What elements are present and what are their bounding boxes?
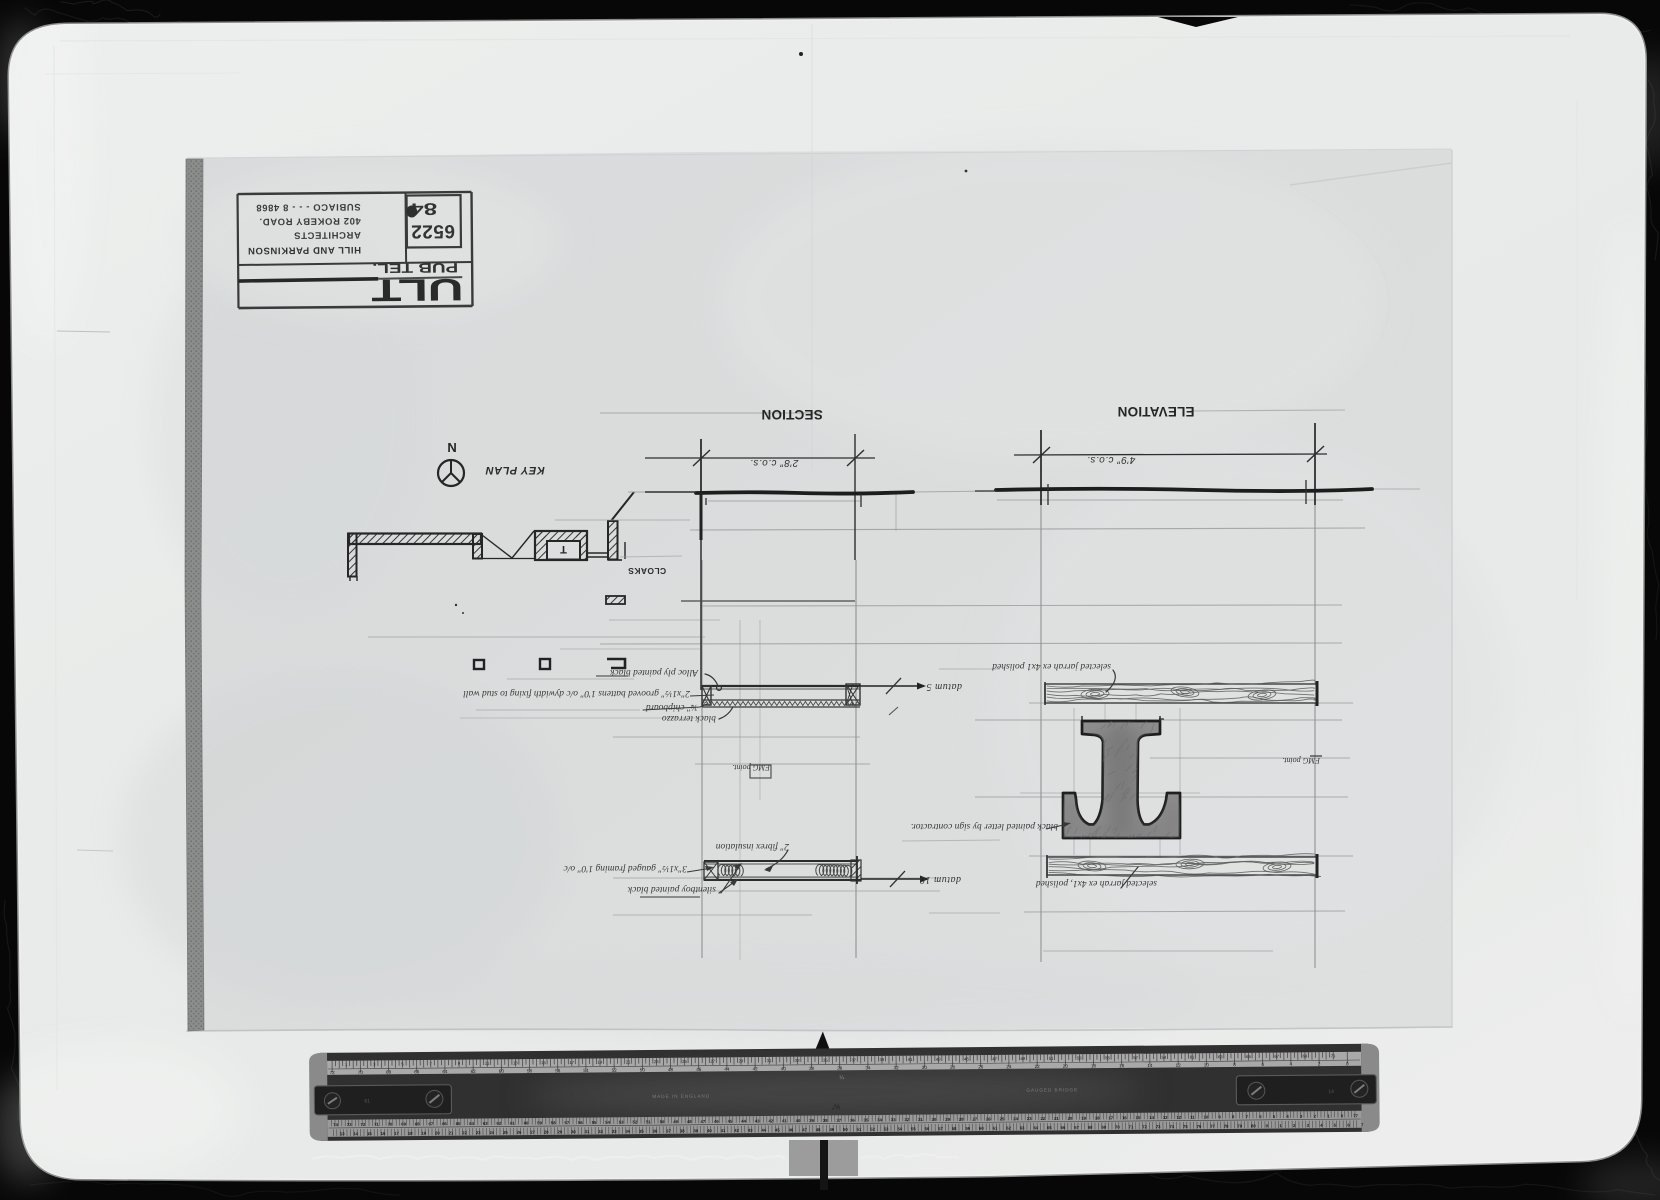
svg-text:73: 73: [347, 1122, 352, 1127]
svg-text:13: 13: [1163, 1115, 1168, 1120]
svg-text:56: 56: [925, 1126, 930, 1131]
svg-text:33: 33: [795, 1058, 800, 1063]
svg-text:59: 59: [965, 1126, 970, 1131]
svg-text:13: 13: [340, 1131, 345, 1136]
svg-text:28: 28: [544, 1129, 549, 1134]
svg-text:41: 41: [721, 1128, 726, 1133]
svg-text:55: 55: [911, 1126, 916, 1131]
svg-text:12: 12: [1176, 1115, 1181, 1120]
svg-text:51: 51: [1049, 1056, 1054, 1061]
svg-text:60: 60: [979, 1126, 984, 1131]
svg-text:61: 61: [1190, 1054, 1195, 1059]
svg-text:34: 34: [865, 1065, 871, 1070]
svg-text:29: 29: [739, 1058, 744, 1063]
svg-text:74: 74: [333, 1122, 338, 1127]
svg-text:10: 10: [1204, 1115, 1209, 1120]
svg-text:50: 50: [843, 1127, 848, 1132]
svg-text:54: 54: [605, 1120, 610, 1125]
svg-text:68: 68: [386, 1070, 392, 1075]
svg-text:ARCHITECTS: ARCHITECTS: [294, 229, 361, 241]
svg-text:64: 64: [1033, 1125, 1038, 1130]
svg-text:56: 56: [578, 1120, 583, 1125]
svg-text:14: 14: [1149, 1115, 1154, 1120]
svg-text:17: 17: [394, 1131, 399, 1136]
svg-text:35: 35: [864, 1117, 869, 1122]
svg-text:GAUGED BRIDGE: GAUGED BRIDGE: [1026, 1087, 1078, 1092]
svg-text:62: 62: [471, 1069, 477, 1074]
svg-text:39: 39: [809, 1118, 814, 1123]
svg-text:black painted letter by sign c: black painted letter by sign contractor.: [911, 821, 1058, 831]
svg-text:39: 39: [880, 1057, 885, 1062]
svg-text:72: 72: [1142, 1124, 1147, 1129]
svg-text:50: 50: [640, 1067, 646, 1072]
svg-text:25: 25: [682, 1059, 687, 1064]
svg-text:41: 41: [782, 1118, 787, 1123]
svg-text:76: 76: [1197, 1124, 1202, 1129]
svg-text:37: 37: [851, 1057, 856, 1062]
svg-text:41: 41: [908, 1057, 913, 1062]
svg-text:15: 15: [367, 1131, 372, 1136]
svg-text:15: 15: [541, 1060, 546, 1065]
svg-text:65: 65: [1246, 1054, 1251, 1059]
svg-text:61: 61: [510, 1121, 515, 1126]
svg-text:2″x1½″ grooved battens 1′0″ o/: 2″x1½″ grooved battens 1′0″ o/c dywidth …: [463, 688, 690, 699]
svg-text:60: 60: [524, 1120, 529, 1125]
svg-text:53: 53: [1077, 1055, 1082, 1060]
svg-text:SUBIACO - - - 8 4868: SUBIACO - - - 8 4868: [256, 201, 361, 213]
svg-text:31: 31: [918, 1117, 923, 1122]
svg-text:66: 66: [414, 1069, 420, 1074]
svg-text:58: 58: [952, 1126, 957, 1131]
svg-text:3″x1½″ gauged framing 1′0″ o/c: 3″x1½″ gauged framing 1′0″ o/c: [563, 863, 688, 874]
svg-text:ULT: ULT: [371, 272, 463, 308]
svg-text:58: 58: [527, 1068, 533, 1073]
svg-text:14: 14: [1328, 1089, 1334, 1095]
svg-text:64: 64: [442, 1069, 448, 1074]
svg-text:61: 61: [993, 1126, 998, 1131]
svg-text:22: 22: [462, 1130, 467, 1135]
svg-text:49: 49: [1021, 1056, 1026, 1061]
svg-text:22: 22: [1035, 1064, 1041, 1069]
svg-text:44: 44: [761, 1128, 766, 1133]
svg-text:18: 18: [408, 1131, 413, 1136]
svg-text:52: 52: [870, 1127, 875, 1132]
svg-text:20: 20: [1063, 1064, 1069, 1069]
svg-text:27: 27: [710, 1059, 715, 1064]
svg-text:silentboy painted black: silentboy painted black: [627, 884, 716, 894]
svg-text:42: 42: [753, 1066, 759, 1071]
svg-text:70: 70: [388, 1122, 393, 1127]
svg-text:58: 58: [551, 1120, 556, 1125]
svg-text:21: 21: [1054, 1116, 1059, 1121]
svg-text:datum 5: datum 5: [926, 681, 962, 692]
svg-text:66: 66: [1061, 1125, 1066, 1130]
svg-text:51: 51: [646, 1119, 651, 1124]
svg-text:12: 12: [1176, 1063, 1182, 1068]
svg-text:HILL AND PARKINSON: HILL AND PARKINSON: [247, 244, 361, 256]
svg-text:32: 32: [598, 1129, 603, 1134]
svg-text:18: 18: [1091, 1064, 1097, 1069]
svg-text:26: 26: [978, 1064, 984, 1069]
svg-text:45: 45: [775, 1127, 780, 1132]
svg-text:77: 77: [1353, 1113, 1358, 1118]
svg-text:65: 65: [1047, 1125, 1052, 1130]
svg-text:N: N: [447, 440, 456, 455]
svg-text:17: 17: [569, 1060, 574, 1065]
svg-text:35: 35: [639, 1129, 644, 1134]
svg-text:32: 32: [904, 1117, 909, 1122]
svg-text:18: 18: [1095, 1115, 1100, 1120]
svg-text:23: 23: [476, 1130, 481, 1135]
svg-text:24: 24: [1013, 1116, 1018, 1121]
svg-text:70: 70: [358, 1070, 364, 1075]
svg-text:MADE IN ENGLAND: MADE IN ENGLAND: [652, 1093, 710, 1099]
svg-text:72: 72: [330, 1070, 336, 1075]
svg-text:black terrazzo: black terrazzo: [662, 713, 716, 723]
svg-text:71: 71: [1129, 1124, 1134, 1129]
svg-text:KEY PLAN: KEY PLAN: [485, 464, 545, 476]
svg-text:71: 71: [1331, 1053, 1336, 1058]
svg-text:28: 28: [959, 1117, 964, 1122]
svg-text:79: 79: [1237, 1123, 1242, 1128]
svg-text:77: 77: [1210, 1124, 1215, 1129]
svg-text:67: 67: [428, 1121, 433, 1126]
svg-text:37: 37: [666, 1128, 671, 1133]
svg-text:37: 37: [836, 1118, 841, 1123]
svg-text:17: 17: [1108, 1115, 1113, 1120]
svg-text:62: 62: [1006, 1125, 1011, 1130]
svg-text:⅝″: ⅝″: [831, 1102, 840, 1111]
svg-text:78: 78: [1224, 1124, 1229, 1129]
svg-text:21: 21: [449, 1130, 454, 1135]
svg-text:56: 56: [555, 1068, 561, 1073]
svg-text:75: 75: [1183, 1124, 1188, 1129]
svg-text:24: 24: [1006, 1064, 1012, 1069]
svg-text:11: 11: [1190, 1115, 1195, 1120]
svg-text:30: 30: [922, 1065, 928, 1070]
svg-text:2″ fibrex insulation: 2″ fibrex insulation: [715, 841, 789, 852]
svg-text:45: 45: [728, 1119, 733, 1124]
svg-text:60: 60: [499, 1069, 505, 1074]
svg-text:47: 47: [802, 1127, 807, 1132]
svg-text:28: 28: [950, 1065, 956, 1070]
svg-text:42: 42: [734, 1128, 739, 1133]
svg-text:43: 43: [755, 1118, 760, 1123]
svg-text:SECTION: SECTION: [761, 407, 822, 422]
svg-text:27: 27: [530, 1130, 535, 1135]
svg-text:50: 50: [660, 1119, 665, 1124]
svg-text:43: 43: [936, 1057, 941, 1062]
svg-text:36: 36: [850, 1118, 855, 1123]
svg-text:20: 20: [435, 1130, 440, 1135]
svg-text:68: 68: [1088, 1125, 1093, 1130]
svg-text:16: 16: [381, 1131, 386, 1136]
svg-text:36: 36: [653, 1129, 658, 1134]
svg-text:46: 46: [714, 1119, 719, 1124]
svg-text:T: T: [560, 543, 567, 555]
svg-text:29: 29: [945, 1117, 950, 1122]
svg-text:32: 32: [894, 1065, 900, 1070]
svg-text:42: 42: [768, 1118, 773, 1123]
svg-text:68: 68: [415, 1121, 420, 1126]
svg-text:26: 26: [517, 1130, 522, 1135]
svg-text:49: 49: [829, 1127, 834, 1132]
svg-text:65: 65: [456, 1121, 461, 1126]
svg-text:23: 23: [1027, 1116, 1032, 1121]
svg-text:ELEVATION: ELEVATION: [1117, 404, 1194, 419]
svg-text:21: 21: [626, 1059, 631, 1064]
svg-text:69: 69: [1303, 1053, 1308, 1058]
svg-text:69: 69: [1101, 1125, 1106, 1130]
svg-text:67: 67: [1274, 1054, 1279, 1059]
svg-text:62: 62: [496, 1121, 501, 1126]
svg-text:19: 19: [421, 1131, 426, 1136]
svg-text:52: 52: [612, 1068, 618, 1073]
svg-text:FMG point.: FMG point.: [732, 763, 771, 772]
svg-text:38: 38: [809, 1066, 815, 1071]
svg-text:74: 74: [1169, 1124, 1174, 1129]
svg-text:57: 57: [938, 1126, 943, 1131]
svg-text:31: 31: [585, 1129, 590, 1134]
svg-text:selected jarrah ex 4x1 polishe: selected jarrah ex 4x1 polished: [992, 661, 1111, 671]
svg-text:43: 43: [748, 1128, 753, 1133]
svg-text:30: 30: [571, 1129, 576, 1134]
svg-text:46: 46: [789, 1127, 794, 1132]
svg-text:40: 40: [707, 1128, 712, 1133]
svg-text:30: 30: [932, 1117, 937, 1122]
svg-text:63: 63: [483, 1121, 488, 1126]
svg-text:48: 48: [668, 1067, 674, 1072]
svg-text:33: 33: [891, 1117, 896, 1122]
svg-text:46: 46: [696, 1067, 702, 1072]
svg-text:57: 57: [1133, 1055, 1138, 1060]
svg-text:55: 55: [592, 1120, 597, 1125]
svg-text:40: 40: [781, 1066, 787, 1071]
svg-text:61: 61: [364, 1098, 370, 1104]
svg-text:73: 73: [1156, 1124, 1161, 1129]
svg-text:16: 16: [1119, 1063, 1125, 1068]
svg-text:selected jarrah ex 4x1, polish: selected jarrah ex 4x1, polished: [1036, 878, 1157, 888]
svg-text:54: 54: [897, 1126, 902, 1131]
svg-text:59: 59: [537, 1120, 542, 1125]
svg-text:63: 63: [1218, 1054, 1223, 1059]
svg-text:31: 31: [767, 1058, 772, 1063]
svg-text:22: 22: [1040, 1116, 1045, 1121]
svg-text:27: 27: [972, 1117, 977, 1122]
svg-text:44: 44: [724, 1067, 730, 1072]
svg-text:47: 47: [700, 1119, 705, 1124]
svg-text:38: 38: [823, 1118, 828, 1123]
svg-text:24: 24: [489, 1130, 494, 1135]
svg-text:51: 51: [857, 1127, 862, 1132]
svg-text:2′8″ c.o.s.: 2′8″ c.o.s.: [750, 457, 800, 468]
svg-text:6522: 6522: [411, 220, 455, 241]
svg-text:66: 66: [442, 1121, 447, 1126]
svg-text:64: 64: [469, 1121, 474, 1126]
svg-text:63: 63: [1020, 1125, 1025, 1130]
svg-text:16: 16: [1122, 1115, 1127, 1120]
svg-text:14: 14: [1147, 1063, 1153, 1068]
svg-text:FMG point.: FMG point.: [1282, 756, 1321, 765]
svg-text:35: 35: [823, 1058, 828, 1063]
svg-text:34: 34: [625, 1129, 630, 1134]
svg-text:57: 57: [564, 1120, 569, 1125]
svg-text:19: 19: [1081, 1116, 1086, 1121]
svg-text:13: 13: [513, 1060, 518, 1065]
svg-text:71: 71: [374, 1122, 379, 1127]
svg-text:CLOAKS: CLOAKS: [628, 566, 666, 576]
svg-text:40: 40: [796, 1118, 801, 1123]
svg-text:69: 69: [401, 1122, 406, 1127]
svg-text:23: 23: [654, 1059, 659, 1064]
svg-text:80: 80: [1251, 1123, 1256, 1128]
svg-text:14: 14: [353, 1131, 358, 1136]
svg-text:29: 29: [557, 1129, 562, 1134]
svg-text:45: 45: [964, 1056, 969, 1061]
svg-text:4′9″ c.o.s.: 4′9″ c.o.s.: [1087, 454, 1136, 465]
svg-text:26: 26: [986, 1116, 991, 1121]
svg-text:34: 34: [877, 1117, 882, 1122]
svg-text:11: 11: [485, 1061, 490, 1066]
svg-text:20: 20: [1068, 1116, 1073, 1121]
svg-text:19: 19: [598, 1060, 603, 1065]
svg-text:55: 55: [1105, 1055, 1110, 1060]
svg-text:38: 38: [680, 1128, 685, 1133]
svg-text:70: 70: [1115, 1124, 1120, 1129]
svg-text:53: 53: [884, 1127, 889, 1132]
svg-text:10: 10: [1204, 1063, 1210, 1068]
svg-text:25: 25: [503, 1130, 508, 1135]
svg-text:53: 53: [619, 1120, 624, 1125]
svg-text:67: 67: [1074, 1125, 1079, 1130]
svg-text:33: 33: [612, 1129, 617, 1134]
svg-text:15: 15: [1136, 1115, 1141, 1120]
svg-text:49: 49: [673, 1119, 678, 1124]
svg-text:44: 44: [741, 1119, 746, 1124]
svg-text:39: 39: [693, 1128, 698, 1133]
svg-text:48: 48: [816, 1127, 821, 1132]
svg-text:54: 54: [583, 1068, 589, 1073]
svg-text:datum 10: datum 10: [920, 874, 962, 885]
svg-text:47: 47: [992, 1056, 997, 1061]
svg-text:72: 72: [360, 1122, 365, 1127]
svg-text:36: 36: [837, 1066, 843, 1071]
svg-text:52: 52: [632, 1120, 637, 1125]
svg-text:48: 48: [687, 1119, 692, 1124]
svg-text:59: 59: [1162, 1055, 1167, 1060]
svg-text:402 ROKEBY ROAD.: 402 ROKEBY ROAD.: [259, 215, 361, 227]
svg-text:25: 25: [1000, 1116, 1005, 1121]
